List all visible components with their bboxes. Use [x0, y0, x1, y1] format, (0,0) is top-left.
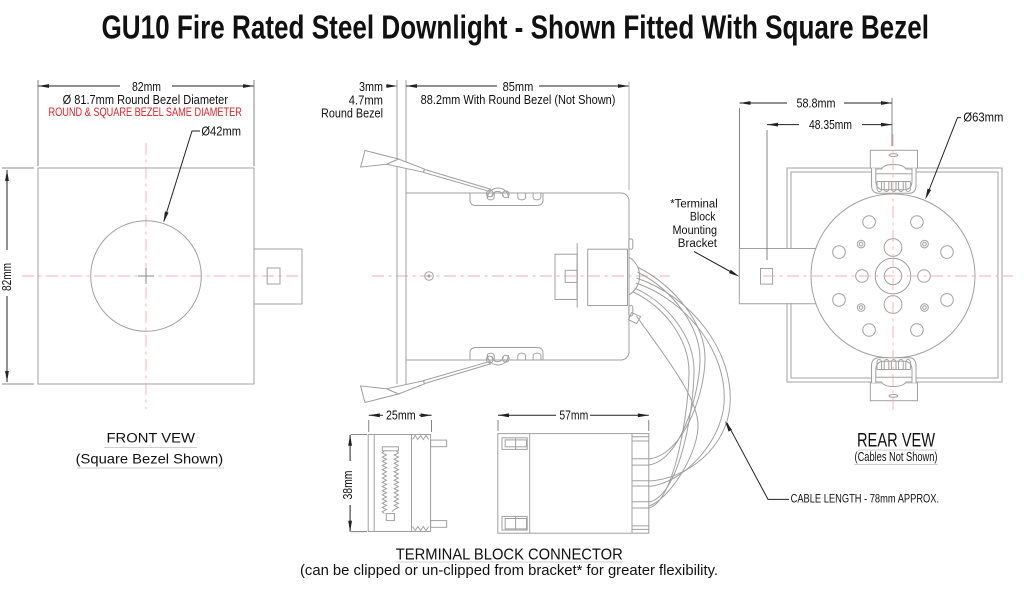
svg-text:(can be clipped or un-clipped: (can be clipped or un-clipped from brack… [300, 562, 718, 579]
svg-text:*Terminal: *Terminal [670, 198, 718, 210]
svg-text:82mm: 82mm [0, 263, 14, 291]
svg-text:(Square Bezel Shown): (Square Bezel Shown) [76, 450, 224, 466]
svg-text:Mounting: Mounting [673, 225, 718, 237]
svg-text:(Cables Not Shown): (Cables Not Shown) [855, 449, 938, 464]
svg-text:88.2mm With Round Bezel (Not S: 88.2mm With Round Bezel (Not Shown) [421, 92, 616, 107]
svg-text:48.35mm: 48.35mm [809, 117, 852, 132]
svg-text:Block: Block [690, 212, 716, 224]
svg-text:Bracket: Bracket [678, 238, 718, 250]
svg-text:FRONT VEW: FRONT VEW [107, 431, 196, 447]
svg-text:ROUND & SQUARE BEZEL SAME DIAM: ROUND & SQUARE BEZEL SAME DIAMETER [49, 105, 243, 119]
svg-text:Ø42mm: Ø42mm [201, 123, 241, 138]
svg-text:57mm: 57mm [559, 408, 588, 423]
svg-text:58.8mm: 58.8mm [797, 96, 836, 111]
svg-text:Round Bezel: Round Bezel [321, 106, 383, 121]
svg-text:GU10 Fire Rated Steel Downligh: GU10 Fire Rated Steel Downlight - Shown … [102, 9, 930, 46]
svg-text:CABLE LENGTH - 78mm APPROX.: CABLE LENGTH - 78mm APPROX. [791, 494, 940, 506]
svg-text:Ø63mm: Ø63mm [963, 110, 1003, 125]
svg-text:25mm: 25mm [386, 408, 416, 423]
svg-text:38mm: 38mm [340, 471, 355, 500]
